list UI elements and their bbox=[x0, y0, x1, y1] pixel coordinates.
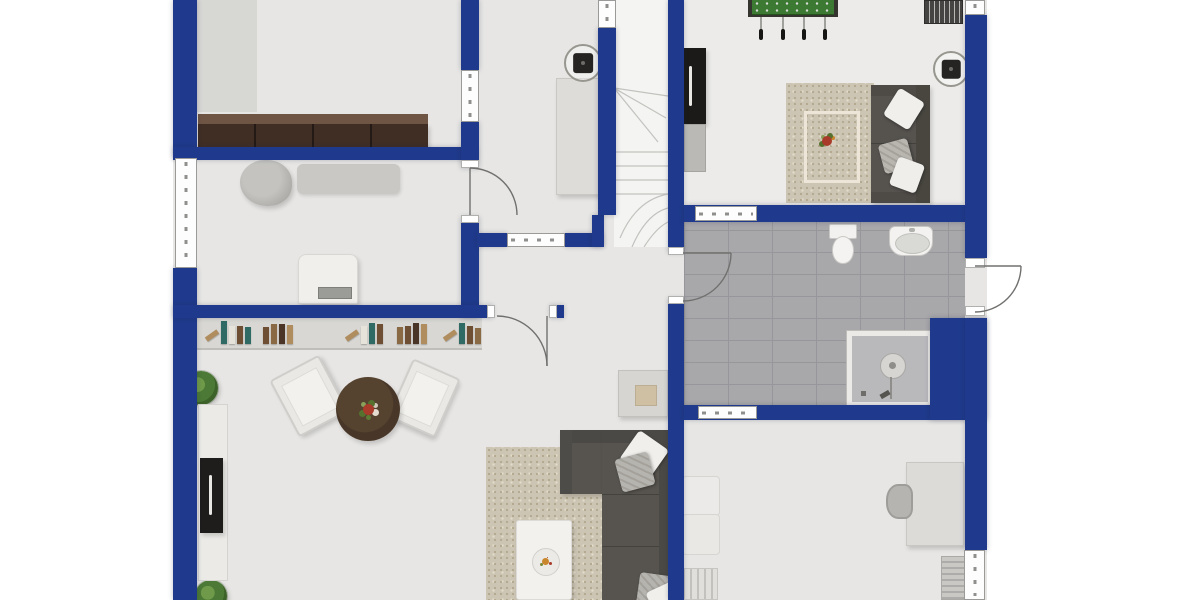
foosball-field bbox=[752, 0, 834, 15]
gray-cabinet bbox=[684, 124, 706, 172]
door-jamb bbox=[668, 247, 684, 255]
shower-hose bbox=[890, 377, 892, 399]
faucet bbox=[909, 228, 915, 232]
foosball-handle bbox=[759, 29, 763, 40]
bookshelf bbox=[197, 318, 482, 350]
book bbox=[237, 326, 243, 344]
kitchen-ceiling-item bbox=[564, 44, 602, 82]
tv-panel bbox=[200, 458, 223, 533]
floor-plan bbox=[0, 0, 1200, 600]
wall-outer-left-upper bbox=[173, 0, 197, 158]
sofa-armrest bbox=[560, 430, 572, 494]
wall-divider-living bbox=[173, 305, 493, 318]
wall-center-vertical-upper bbox=[668, 0, 684, 253]
book bbox=[443, 329, 457, 341]
radiator bbox=[941, 556, 965, 600]
book bbox=[413, 323, 419, 344]
bean-bag bbox=[240, 160, 292, 206]
book bbox=[459, 323, 465, 344]
gray-daybed bbox=[297, 164, 400, 194]
window-interior-bathroom-south bbox=[698, 406, 757, 419]
corner-sofa-arm-left bbox=[560, 430, 606, 494]
game-room-rug bbox=[786, 83, 874, 203]
book bbox=[377, 324, 383, 344]
book bbox=[279, 324, 285, 344]
foosball-table bbox=[748, 0, 838, 17]
wall-outer-right-mid bbox=[965, 318, 987, 550]
desk-chair bbox=[886, 484, 913, 519]
sofa-cushion-line bbox=[602, 494, 659, 495]
foosball-handle bbox=[781, 29, 785, 40]
table-tray bbox=[635, 385, 657, 406]
game-room-ceiling-item bbox=[933, 51, 969, 87]
fruit-bowl bbox=[532, 548, 560, 576]
toilet-bowl bbox=[832, 236, 854, 264]
book bbox=[421, 324, 427, 344]
sofa-armrest bbox=[871, 192, 916, 203]
window-interior-kitchen-west bbox=[461, 70, 479, 122]
door-jamb bbox=[549, 305, 557, 318]
book bbox=[475, 328, 481, 344]
foosball-handle bbox=[823, 29, 827, 40]
shower bbox=[847, 331, 933, 407]
rug-flower-centerpiece bbox=[822, 136, 832, 146]
black-cabinet bbox=[684, 48, 706, 124]
staircase bbox=[614, 0, 668, 247]
book bbox=[361, 326, 367, 344]
book bbox=[397, 327, 403, 344]
wall-stairs-left bbox=[598, 28, 616, 215]
book bbox=[229, 326, 235, 344]
window-interior-bathroom-north bbox=[695, 206, 757, 221]
round-table bbox=[336, 377, 400, 441]
hall-side-table bbox=[618, 370, 668, 417]
book bbox=[405, 326, 411, 344]
shower-drain bbox=[861, 391, 866, 396]
wall-outer-right-upper bbox=[965, 15, 987, 258]
shower-head bbox=[880, 353, 906, 379]
sofa-seat-divider bbox=[254, 124, 256, 148]
sofa-row-seats bbox=[198, 124, 428, 148]
door-jamb bbox=[461, 215, 479, 223]
window-right-top-stub bbox=[965, 0, 985, 15]
book bbox=[221, 321, 227, 344]
window-left-exterior bbox=[175, 158, 197, 268]
cabinet-handle bbox=[689, 66, 692, 106]
book bbox=[345, 329, 359, 341]
foosball-handle bbox=[802, 29, 806, 40]
wall-vertical-west-a bbox=[461, 0, 479, 70]
kitchen-counter bbox=[556, 78, 601, 195]
floor-mat bbox=[197, 0, 257, 112]
door-jamb bbox=[461, 160, 479, 168]
book bbox=[369, 323, 375, 344]
sofa-seat-divider bbox=[312, 124, 314, 148]
sofa-seat-divider bbox=[370, 124, 372, 148]
wall-stairs-junction bbox=[592, 215, 604, 247]
bed-upper bbox=[682, 476, 720, 516]
bed-lower bbox=[682, 514, 720, 555]
window-stairs-top bbox=[598, 0, 616, 28]
flower-centerpiece bbox=[363, 404, 374, 415]
tv-handle bbox=[209, 475, 212, 515]
door-jamb bbox=[965, 306, 985, 316]
coffee-table bbox=[516, 520, 572, 600]
wall-center-vertical-lower bbox=[668, 298, 684, 600]
window-interior-kitchen-south bbox=[507, 233, 565, 247]
door-jamb bbox=[668, 296, 684, 304]
rug-inner-border bbox=[804, 111, 860, 183]
basin bbox=[895, 233, 930, 254]
book bbox=[205, 329, 219, 341]
slatted-bench bbox=[924, 0, 963, 24]
wall-divider-upper bbox=[173, 147, 477, 160]
wall-kitchen-south-a bbox=[477, 233, 507, 247]
sofa-cushion-line bbox=[602, 546, 659, 547]
book bbox=[263, 327, 269, 344]
book bbox=[245, 327, 251, 344]
book bbox=[467, 326, 473, 344]
striped-unit bbox=[682, 568, 718, 600]
book bbox=[287, 325, 293, 344]
window-bedroom-right bbox=[964, 550, 985, 600]
book bbox=[271, 324, 277, 344]
door-jamb bbox=[965, 258, 985, 268]
washbasin bbox=[889, 226, 933, 256]
door-jamb bbox=[487, 305, 495, 318]
bedroom-desk bbox=[906, 462, 964, 546]
shower-handle bbox=[879, 390, 890, 399]
desk-keyboard bbox=[318, 287, 352, 299]
